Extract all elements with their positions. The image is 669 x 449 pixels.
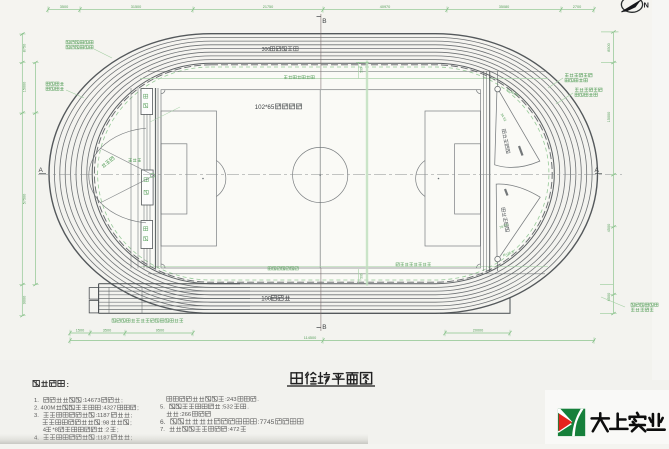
svg-text::: : bbox=[67, 380, 69, 389]
svg-text:N: N bbox=[644, 1, 649, 10]
svg-text:2700: 2700 bbox=[573, 5, 581, 9]
svg-text::2: :2 bbox=[104, 428, 109, 434]
svg-text:9000: 9000 bbox=[23, 296, 27, 304]
svg-text:6.: 6. bbox=[160, 419, 166, 426]
svg-text:20000: 20000 bbox=[473, 328, 484, 332]
svg-text:8500: 8500 bbox=[607, 43, 611, 51]
svg-text::98: :98 bbox=[101, 420, 110, 426]
svg-text:300: 300 bbox=[262, 47, 271, 53]
svg-text:102*65: 102*65 bbox=[255, 104, 275, 111]
svg-text::4327: :4327 bbox=[102, 406, 117, 412]
svg-text:114500: 114500 bbox=[304, 336, 316, 340]
svg-text:A: A bbox=[39, 167, 44, 174]
svg-text::1187: :1187 bbox=[96, 413, 110, 419]
svg-text::243: :243 bbox=[225, 397, 237, 403]
svg-text:5.: 5. bbox=[160, 405, 165, 411]
svg-text:57500: 57500 bbox=[23, 194, 27, 205]
svg-text:B: B bbox=[322, 324, 326, 331]
svg-text::7745: :7745 bbox=[258, 419, 275, 426]
svg-text:B: B bbox=[322, 18, 326, 25]
svg-text:3500: 3500 bbox=[103, 328, 111, 332]
svg-text:500: 500 bbox=[360, 273, 364, 279]
svg-text:3.: 3. bbox=[34, 413, 39, 419]
svg-text:9500: 9500 bbox=[156, 328, 164, 332]
svg-text:4500: 4500 bbox=[607, 224, 611, 232]
svg-text:8750: 8750 bbox=[23, 44, 27, 52]
svg-text:31500: 31500 bbox=[131, 5, 142, 9]
svg-text::14673: :14673 bbox=[83, 398, 102, 404]
svg-text:35080: 35080 bbox=[499, 5, 510, 9]
svg-text:7.: 7. bbox=[160, 427, 165, 433]
svg-text:21750: 21750 bbox=[263, 5, 274, 9]
svg-text::532: :532 bbox=[222, 405, 233, 411]
svg-text:500: 500 bbox=[360, 67, 364, 73]
svg-text:15000: 15000 bbox=[607, 112, 611, 123]
svg-text:1500: 1500 bbox=[76, 328, 84, 332]
svg-text:100: 100 bbox=[261, 296, 272, 302]
svg-text::266: :266 bbox=[180, 412, 192, 418]
svg-text:1.: 1. bbox=[34, 398, 39, 404]
svg-text:*8: *8 bbox=[52, 428, 58, 434]
svg-text::472: :472 bbox=[228, 427, 239, 433]
svg-text:40970: 40970 bbox=[380, 5, 391, 9]
svg-text:2. 400M: 2. 400M bbox=[34, 406, 55, 412]
svg-text:3500: 3500 bbox=[60, 5, 68, 9]
svg-text:A: A bbox=[595, 167, 600, 174]
svg-text:15000: 15000 bbox=[23, 82, 27, 93]
